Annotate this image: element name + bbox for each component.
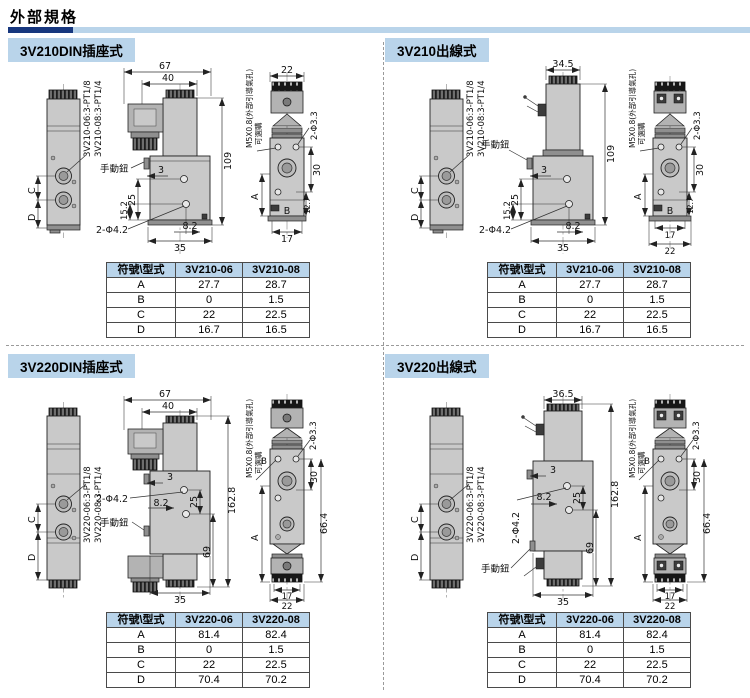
manual-label: 手動鈕 [100, 517, 129, 529]
din-connector-bottom [128, 556, 163, 578]
dim-height: 162.8 [610, 481, 621, 508]
table-header-model-08: 3V220-08 [243, 613, 310, 628]
table-header-model-06: 3V220-06 [176, 613, 243, 628]
section-3v210-din: 3V210DIN插座式 C D 3V210-06:3-PT1/8 3V210-0… [0, 36, 383, 346]
dim-c: C [410, 187, 421, 194]
drawing-3v210-wire: C D 3V210-06:3-PT1/8 3V210-08:3-PT1/4 34… [383, 48, 750, 260]
dim-17: 17 [665, 231, 676, 241]
dim-8-2: 8.2 [565, 221, 580, 232]
dim-35: 35 [557, 597, 569, 608]
pilot-port-label: M5X0.8(外部引導氣孔) [627, 69, 637, 148]
table-header-symbol: 符號\型式 [488, 263, 557, 278]
dim-c: C [410, 516, 421, 523]
table-row: B01.5 [107, 643, 310, 658]
port-label-06: 3V210-06:3-PT1/8 [466, 80, 476, 157]
dim-66-4: 66.4 [319, 513, 330, 534]
dim-c: C [27, 187, 38, 194]
table-header-symbol: 符號\型式 [107, 613, 176, 628]
dim-15-2: 15.2 [120, 201, 130, 220]
section-header: 3V220DIN插座式 [8, 354, 135, 378]
dim-b: B [284, 206, 291, 217]
dim-8-2: 8.2 [153, 498, 168, 509]
table-header-model-08: 3V210-08 [243, 263, 310, 278]
wire-terminal [536, 424, 544, 435]
dim-pilot-holes: 2-Φ3.3 [693, 111, 703, 140]
dim-d: D [410, 554, 421, 561]
dim-25: 25 [189, 496, 200, 508]
dim-a: A [633, 534, 644, 541]
end-view: M5X0.8(外部引導氣孔) 可選購 B 2-Φ3.3 30 66.4 A 17 [244, 394, 330, 610]
table-row: A27.728.7 [488, 278, 691, 293]
manual-button [527, 158, 532, 169]
table-row: D16.716.5 [488, 323, 691, 338]
dim-height: 109 [223, 152, 234, 170]
dim-holes: 2-Φ4.2 [96, 225, 128, 236]
title-underline-accent [8, 27, 73, 33]
table-row: C2222.5 [107, 658, 310, 673]
front-view: 67 40 3 2-Φ4.2 8.2 手動鈕 [96, 389, 238, 606]
pilot-port-label: M5X0.8(外部引導氣孔) [244, 69, 254, 148]
front-view: 36.5 3 8.2 2-Φ4.2 25 69 [481, 389, 621, 608]
dim-c: C [27, 516, 38, 523]
front-view: 34.5 手動鈕 3 25 15.2 2-Φ4.2 [479, 59, 617, 254]
spec-table: 符號\型式 3V220-06 3V220-08 A81.482.4 B01.5 … [487, 612, 691, 688]
dim-width-total: 67 [159, 389, 171, 400]
dim-22: 22 [281, 65, 293, 76]
table-row: D70.470.2 [107, 673, 310, 688]
table-header-model-08: 3V210-08 [624, 263, 691, 278]
spec-table: 符號\型式 3V220-06 3V220-08 A81.482.4 B01.5 … [106, 612, 310, 688]
dim-15-2: 15.2 [503, 201, 513, 220]
table-row: D16.716.5 [107, 323, 310, 338]
table-row: C2222.5 [107, 308, 310, 323]
dim-12-7: 12.7 [686, 197, 695, 214]
dim-35: 35 [174, 243, 186, 254]
table-row: B01.5 [488, 293, 691, 308]
table-header-symbol: 符號\型式 [107, 263, 176, 278]
dim-3: 3 [167, 472, 173, 483]
dim-a: A [250, 534, 261, 541]
manual-label: 手動鈕 [481, 563, 510, 575]
dim-25: 25 [572, 492, 583, 504]
dim-b: B [667, 206, 674, 217]
title-underline-bar [8, 27, 750, 33]
dim-69: 69 [202, 546, 213, 558]
dim-pilot-holes: 2-Φ3.3 [692, 421, 702, 450]
table-row: B01.5 [107, 293, 310, 308]
wire-terminal [538, 104, 546, 116]
drawing-3v220-din: C D 3V220-06:3-PT1/8 3V220-08:3-PT1/4 67… [0, 386, 383, 610]
dim-22: 22 [665, 602, 676, 610]
dim-width-coil: 40 [162, 401, 174, 412]
dim-holes: 2-Φ4.2 [479, 225, 511, 236]
side-view: C D 3V210-06:3-PT1/8 3V210-08:3-PT1/4 [410, 80, 487, 238]
table-row: B01.5 [488, 643, 691, 658]
table-header-model-06: 3V210-06 [176, 263, 243, 278]
table-row: C2222.5 [488, 308, 691, 323]
dim-22: 22 [665, 247, 676, 257]
table-row: A81.482.4 [107, 628, 310, 643]
dim-b: B [261, 457, 267, 467]
port-label-06: 3V220-06:3-PT1/8 [83, 466, 93, 543]
side-view: C D 3V220-06:3-PT1/8 3V220-08:3-PT1/4 [27, 402, 104, 598]
wire-terminal-bottom [536, 558, 544, 569]
dim-30: 30 [695, 164, 706, 176]
dim-66-4: 66.4 [702, 513, 713, 534]
dim-22: 22 [282, 602, 293, 610]
table-row: D70.470.2 [488, 673, 691, 688]
drawing-3v220-wire: C D 3V220-06:3-PT1/8 3V220-08:3-PT1/4 36… [383, 386, 750, 610]
dim-35: 35 [174, 595, 186, 606]
dim-b: B [644, 457, 650, 467]
optional-label: 可選購 [636, 122, 646, 145]
dim-d: D [27, 554, 38, 561]
dim-3: 3 [541, 165, 547, 176]
pilot-port-label: M5X0.8(外部引導氣孔) [627, 399, 637, 478]
table-header-model-08: 3V220-08 [624, 613, 691, 628]
dim-height: 162.8 [227, 487, 238, 514]
section-3v220-din: 3V220DIN插座式 C D 3V220-06:3-PT1/8 3V220-0… [0, 352, 383, 698]
optional-label: 可選購 [253, 122, 263, 145]
dim-30: 30 [309, 471, 320, 483]
table-header-model-06: 3V220-06 [557, 613, 624, 628]
dim-pilot-holes: 2-Φ3.3 [309, 421, 319, 450]
port-label-08: 3V210-08:3-PT1/4 [94, 80, 104, 157]
side-view: C D 3V210-06:3-PT1/8 3V210-08:3-PT1/4 [27, 80, 104, 238]
drawing-3v210-din: C D 3V210-06:3-PT1/8 3V210-08:3-PT1/4 67… [0, 48, 383, 260]
end-view: 22 B M5X0.8(外部引導氣孔) 可選購 2-Φ3.3 30 [244, 65, 323, 245]
dim-17: 17 [281, 234, 293, 245]
dim-69: 69 [585, 542, 596, 554]
dim-height: 109 [606, 145, 617, 163]
section-3v210-wire: 3V210出線式 C D 3V210-06:3-PT1/8 3V210-08:3… [383, 36, 750, 346]
port-label-06: 3V210-06:3-PT1/8 [83, 80, 93, 157]
dim-3: 3 [158, 165, 164, 176]
table-row: A27.728.7 [107, 278, 310, 293]
label-band [655, 400, 685, 408]
dim-width-total: 67 [159, 61, 171, 72]
manual-label: 手動鈕 [100, 163, 129, 175]
table-header-symbol: 符號\型式 [488, 613, 557, 628]
dim-holes: 2-Φ4.2 [96, 494, 128, 505]
dim-holes: 2-Φ4.2 [511, 512, 522, 544]
port-label-08: 3V220-08:3-PT1/4 [477, 466, 487, 543]
dim-d: D [410, 214, 421, 221]
label-band [272, 82, 302, 91]
label-band [655, 82, 685, 91]
dim-17: 17 [282, 592, 293, 602]
dim-width-coil: 40 [162, 73, 174, 84]
label-band-bottom [272, 574, 302, 582]
port-label-06: 3V220-06:3-PT1/8 [466, 466, 476, 543]
dim-8-2: 8.2 [182, 221, 197, 232]
dim-pilot-holes: 2-Φ3.3 [310, 111, 320, 140]
manual-button [144, 526, 149, 536]
label-band-bottom [655, 574, 685, 582]
label-band [272, 400, 302, 408]
section-3v220-wire: 3V220出線式 C D 3V220-06:3-PT1/8 3V220-08:3… [383, 352, 750, 698]
pilot-port-label: M5X0.8(外部引導氣孔) [244, 399, 254, 478]
dim-35: 35 [557, 243, 569, 254]
dim-a: A [250, 193, 261, 200]
dim-d: D [27, 214, 38, 221]
table-header-model-06: 3V210-06 [557, 263, 624, 278]
page-title: 外部規格 [10, 6, 78, 27]
side-view: C D 3V220-06:3-PT1/8 3V220-08:3-PT1/4 [410, 402, 487, 598]
section-header: 3V220出線式 [385, 354, 489, 378]
dim-3: 3 [550, 465, 556, 476]
dim-a: A [633, 193, 644, 200]
dim-width-coil: 34.5 [552, 59, 573, 70]
end-view: B M5X0.8(外部引導氣孔) 可選購 2-Φ3.3 30 12.7 A 17 [627, 69, 706, 257]
dim-30: 30 [692, 471, 703, 483]
dim-12-7: 12.7 [303, 197, 312, 214]
manual-button [530, 541, 535, 551]
dim-17: 17 [665, 592, 676, 602]
table-row: A81.482.4 [488, 628, 691, 643]
spec-table: 符號\型式 3V210-06 3V210-08 A27.728.7 B01.5 … [487, 262, 691, 338]
table-row: C2222.5 [488, 658, 691, 673]
front-view: 67 40 3 手動鈕 25 [96, 61, 234, 254]
dim-30: 30 [312, 164, 323, 176]
spec-table: 符號\型式 3V210-06 3V210-08 A27.728.7 B01.5 … [106, 262, 310, 338]
manual-label: 手動鈕 [481, 139, 510, 151]
end-view: M5X0.8(外部引導氣孔) 可選購 B 2-Φ3.3 30 66.4 A 17 [627, 394, 713, 610]
dim-width-coil: 36.5 [552, 389, 573, 400]
manual-button [144, 158, 149, 169]
